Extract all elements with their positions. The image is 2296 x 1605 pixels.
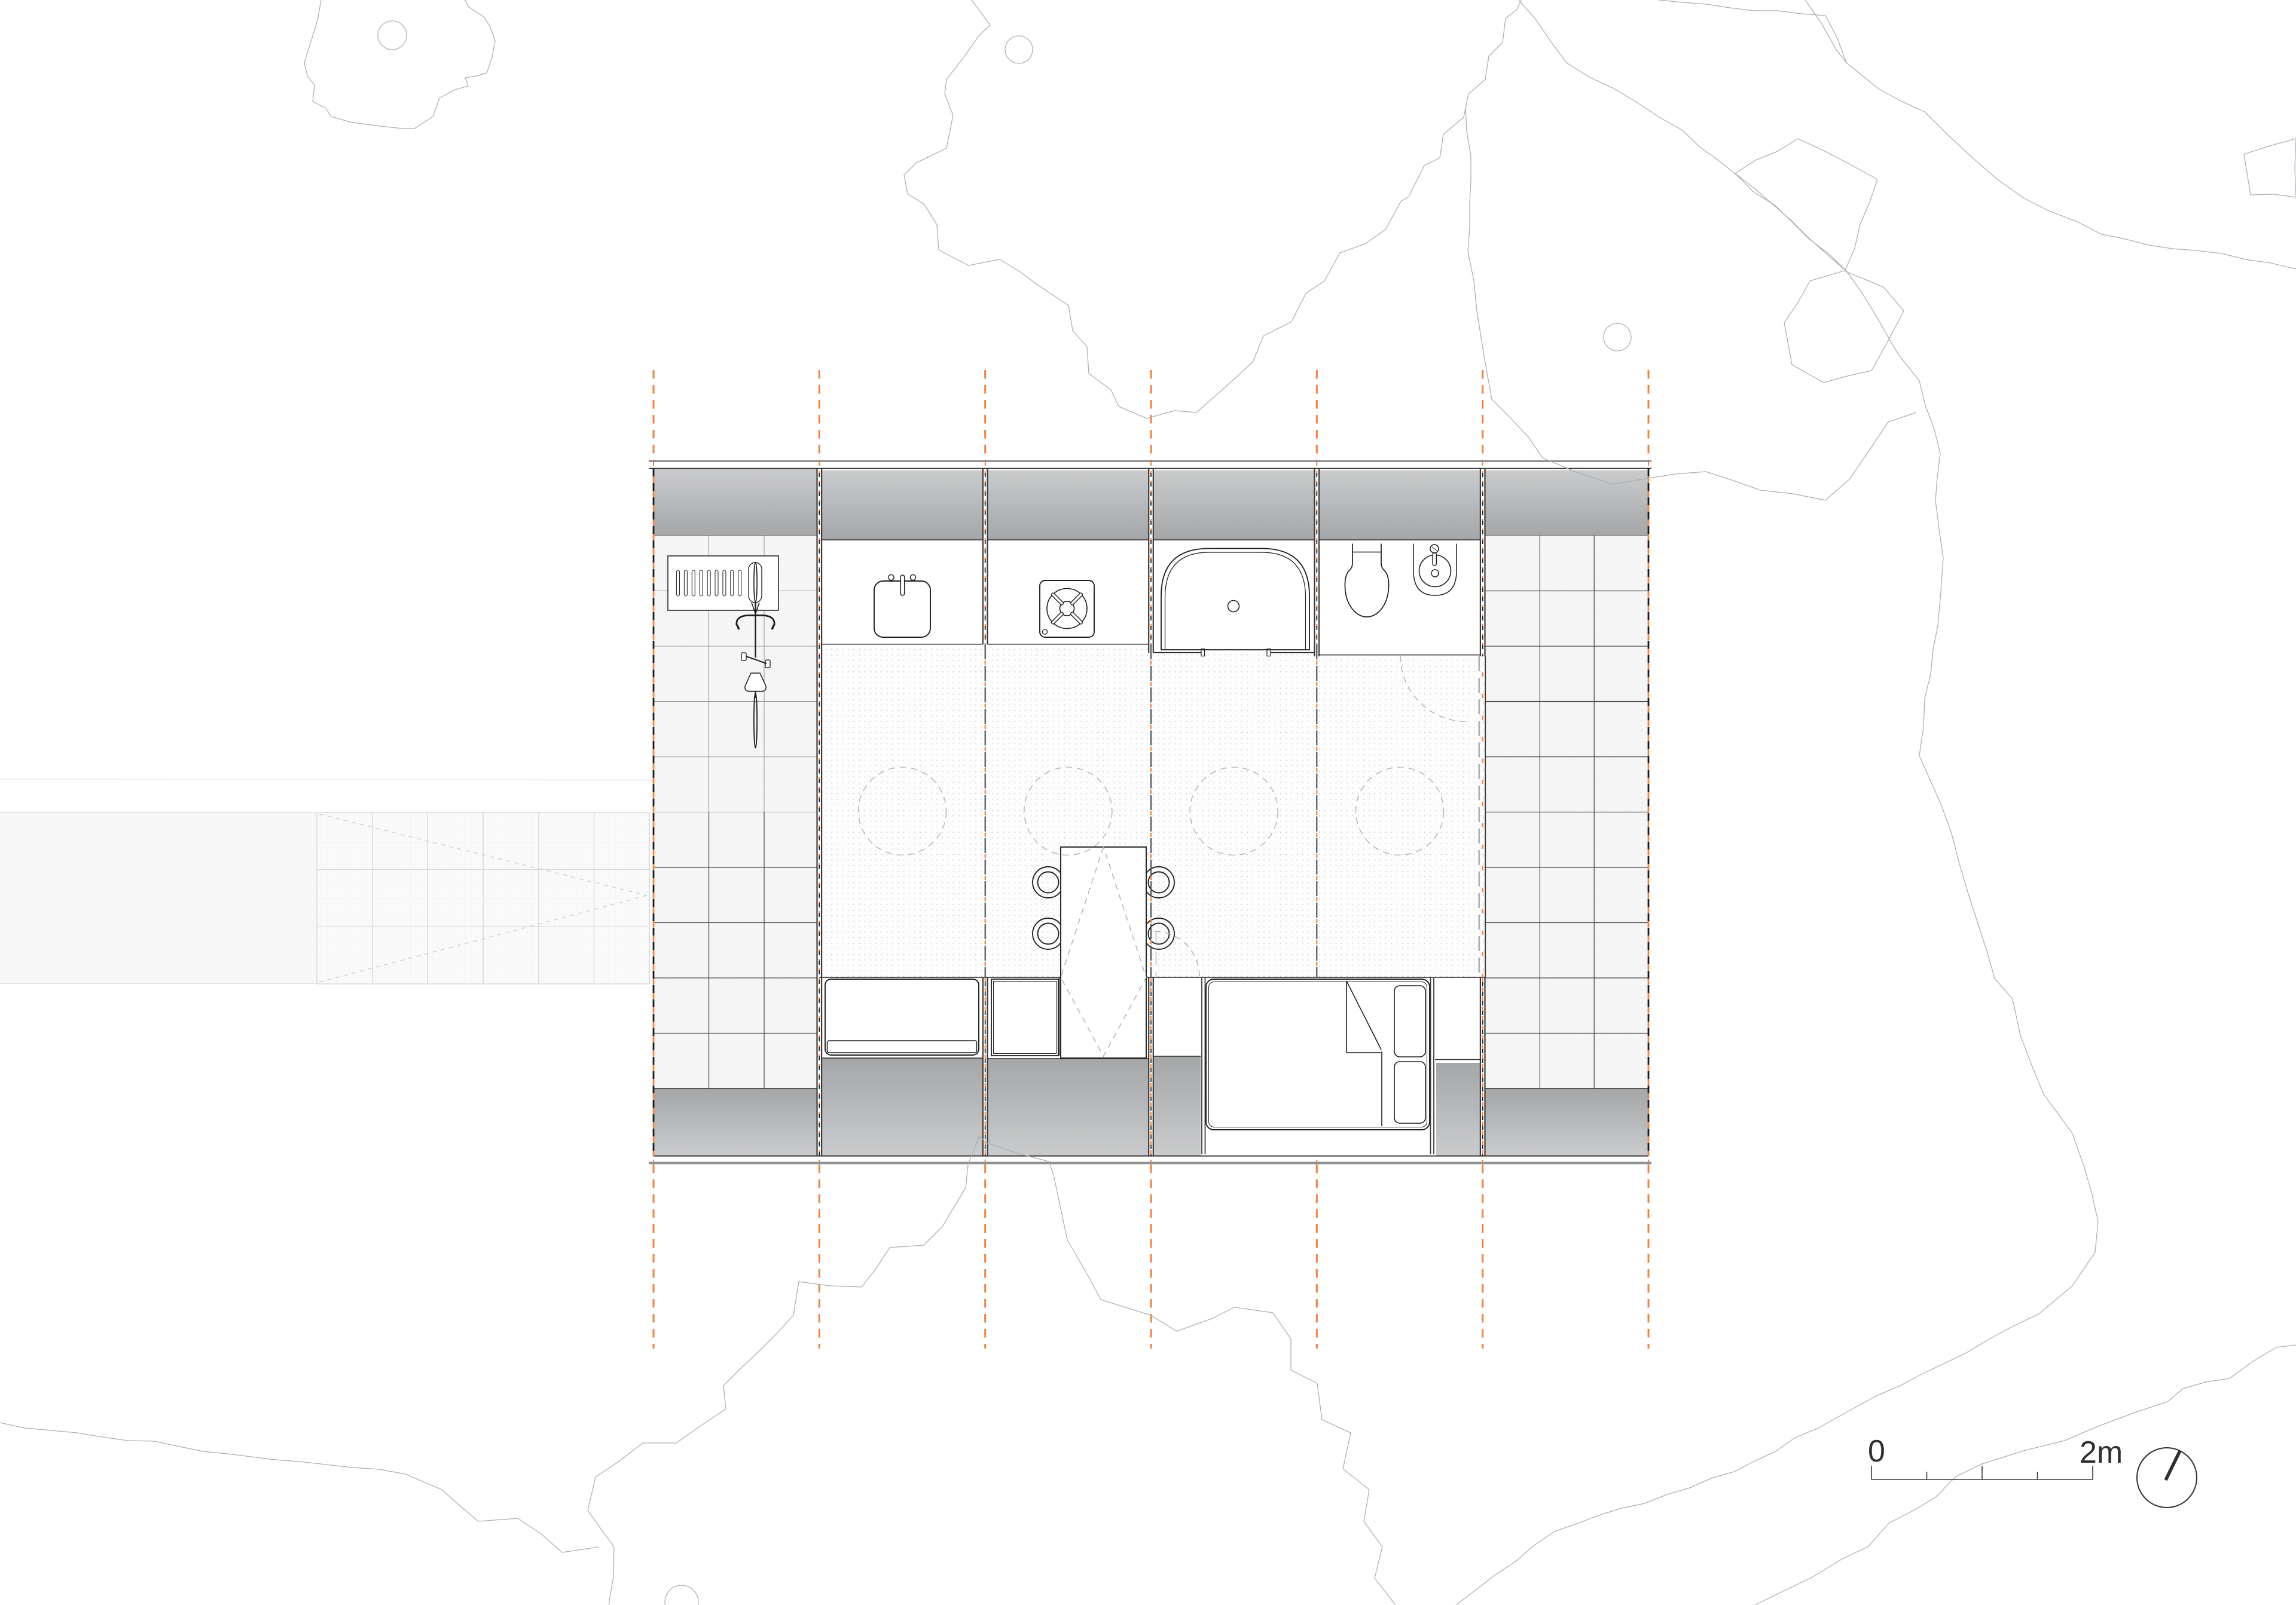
svg-text:0: 0 — [1868, 1434, 1885, 1469]
svg-text:2m: 2m — [2080, 1435, 2123, 1470]
